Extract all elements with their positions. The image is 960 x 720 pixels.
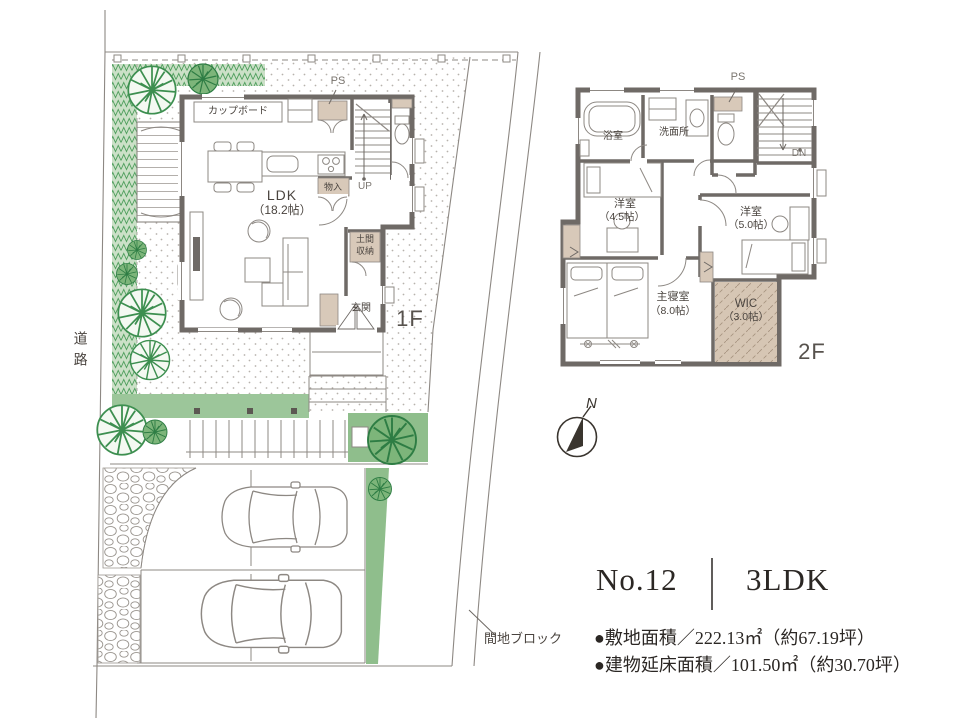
- house-2f: [560, 87, 826, 364]
- floorplan-page: 道路 間地ブロック カップボード PS LDK （18.2帖） 物入 UP 土間…: [0, 0, 960, 720]
- compass: [558, 406, 597, 457]
- label-ldk: LDK: [267, 188, 297, 204]
- label-bath: 浴室: [603, 131, 623, 142]
- label-ps-2f: PS: [731, 71, 746, 83]
- label-room2: 洋室: [740, 206, 762, 218]
- label-ps-1f: PS: [331, 75, 346, 87]
- slat-fence: [186, 420, 348, 458]
- label-dn: DN: [792, 148, 806, 159]
- floor-area-text: ●建物延床面積／101.50㎡（約30.70坪）: [594, 655, 911, 675]
- label-wic: WIC: [735, 298, 757, 311]
- label-up: UP: [358, 181, 372, 192]
- label-wic-size: （3.0帖）: [723, 312, 769, 324]
- label-room2-size: （5.0帖）: [728, 220, 774, 232]
- stone-pavement-lower: [98, 575, 140, 663]
- site-area-text: ●敷地面積／222.13㎡（約67.19坪）: [594, 628, 875, 648]
- label-doma-1: 土間: [356, 234, 374, 244]
- label-cupboard: カップボード: [208, 106, 268, 117]
- plan-number: No.12: [596, 563, 678, 598]
- label-washroom: 洗面所: [659, 127, 689, 138]
- toilet-1f: [395, 116, 409, 144]
- toilet-2f: [718, 114, 734, 145]
- label-1f: 1F: [396, 307, 424, 332]
- label-master: 主寝室: [657, 291, 690, 303]
- car-bottom: [201, 575, 341, 653]
- label-room1-size: （4.5帖）: [599, 212, 645, 224]
- compass-north-label: N: [586, 396, 597, 413]
- label-doma-2: 収納: [356, 246, 374, 256]
- label-2f: 2F: [798, 340, 826, 365]
- label-master-size: （8.0帖）: [650, 306, 696, 318]
- wood-deck: [137, 122, 185, 222]
- master-beds: [567, 263, 648, 348]
- car-top: [222, 482, 347, 552]
- label-ldk-size: （18.2帖）: [252, 204, 311, 217]
- plan-type: 3LDK: [746, 563, 829, 598]
- road-label: 道路: [72, 331, 88, 373]
- block-label: 間地ブロック: [484, 632, 562, 647]
- label-entrance: 玄関: [351, 303, 371, 314]
- stairs-1f: [355, 103, 390, 181]
- label-room1: 洋室: [614, 198, 636, 210]
- label-closet-1f: 物入: [324, 182, 342, 192]
- stone-pavement-upper: [103, 468, 196, 568]
